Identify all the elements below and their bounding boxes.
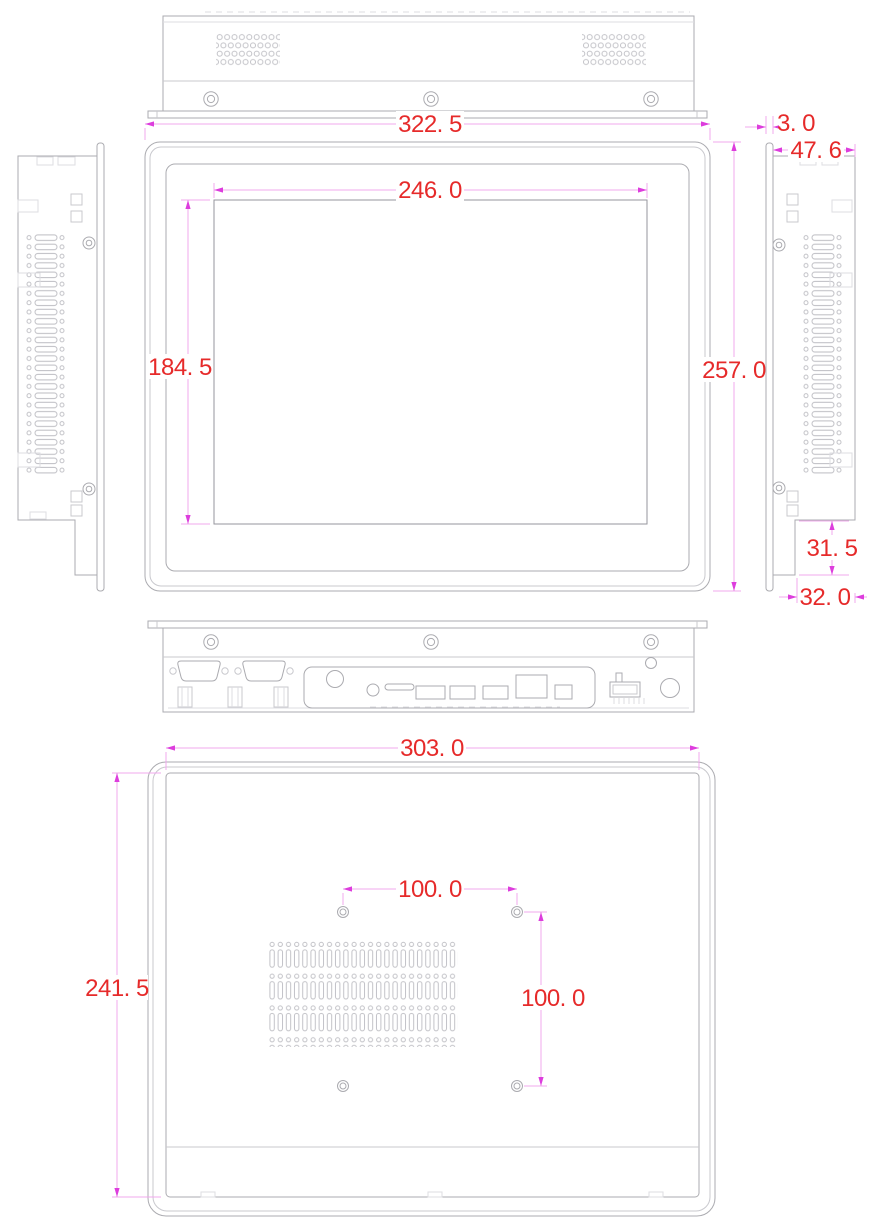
dim-text-bezel-protrusion: 3. 0 xyxy=(777,110,815,137)
dim-text-step-depth: 32. 0 xyxy=(800,584,851,611)
screw-boss xyxy=(204,92,658,106)
audio-jack xyxy=(367,684,379,696)
dim-text-front-height: 257. 0 xyxy=(702,357,766,384)
dim-text-vesa-horizontal: 100. 0 xyxy=(398,876,462,903)
reset-hole xyxy=(646,658,657,669)
dim-front-overall-width: 322. 5 xyxy=(145,111,710,140)
dim-text-rear-height: 241. 5 xyxy=(85,975,149,1002)
side-vent-slots xyxy=(800,233,846,474)
display-area xyxy=(214,200,647,524)
panel-pc-dimension-drawing: 322. 5 246. 0 184. 5 257. 0 xyxy=(0,0,870,1229)
dim-vesa-vertical: 100. 0 xyxy=(521,912,586,1086)
mounting-stud xyxy=(178,687,288,707)
dim-rear-step-height: 31. 5 xyxy=(799,521,860,575)
dim-text-vesa-vertical: 100. 0 xyxy=(521,985,585,1012)
bottom-view xyxy=(148,621,707,712)
speaker-grille-right xyxy=(582,33,646,66)
dim-front-overall-height: 257. 0 xyxy=(702,142,766,591)
power-switch xyxy=(610,673,644,704)
small-port xyxy=(555,685,572,699)
usb-port xyxy=(450,686,475,699)
usb-port xyxy=(416,686,445,699)
side-vent-slots xyxy=(24,233,70,474)
power-jack xyxy=(661,679,680,698)
left-side-view xyxy=(18,143,104,591)
dim-rear-step-depth: 32. 0 xyxy=(779,578,867,611)
round-port xyxy=(327,671,344,688)
dim-display-height: 184. 5 xyxy=(148,200,212,524)
dim-rear-body-height: 241. 5 xyxy=(85,773,161,1197)
technical-drawing-page: 322. 5 246. 0 184. 5 257. 0 xyxy=(0,0,870,1229)
front-view xyxy=(145,142,710,591)
dim-overall-depth: 47. 6 xyxy=(773,137,855,164)
dim-text-overall-depth: 47. 6 xyxy=(791,137,842,164)
dim-rear-body-width: 303. 0 xyxy=(166,735,699,770)
db9-connector xyxy=(170,661,228,681)
dim-bezel-protrusion: 3. 0 xyxy=(745,110,815,137)
front-bezel-edge xyxy=(97,143,104,591)
right-side-view xyxy=(766,143,855,591)
mounting-flange xyxy=(148,621,707,628)
rear-view xyxy=(148,762,715,1216)
speaker-grille-left xyxy=(216,33,280,66)
usb-port xyxy=(483,686,508,699)
dimension-annotations: 322. 5 246. 0 184. 5 257. 0 xyxy=(85,110,867,1197)
card-slot xyxy=(385,684,414,690)
lan-port xyxy=(516,675,547,698)
front-bezel-edge xyxy=(766,143,773,591)
top-view xyxy=(148,12,707,118)
dim-text-display-width: 246. 0 xyxy=(398,177,462,204)
dim-text-rear-width: 303. 0 xyxy=(400,735,464,762)
dim-text-step-height: 31. 5 xyxy=(807,535,858,562)
front-bezel xyxy=(166,164,689,571)
dim-vesa-horizontal: 100. 0 xyxy=(343,876,517,905)
db9-connector xyxy=(235,661,293,681)
dim-text-front-width: 322. 5 xyxy=(398,111,462,138)
rear-vent-grid xyxy=(268,941,458,1047)
screw-boss xyxy=(204,635,658,649)
dim-text-display-height: 184. 5 xyxy=(148,354,212,381)
